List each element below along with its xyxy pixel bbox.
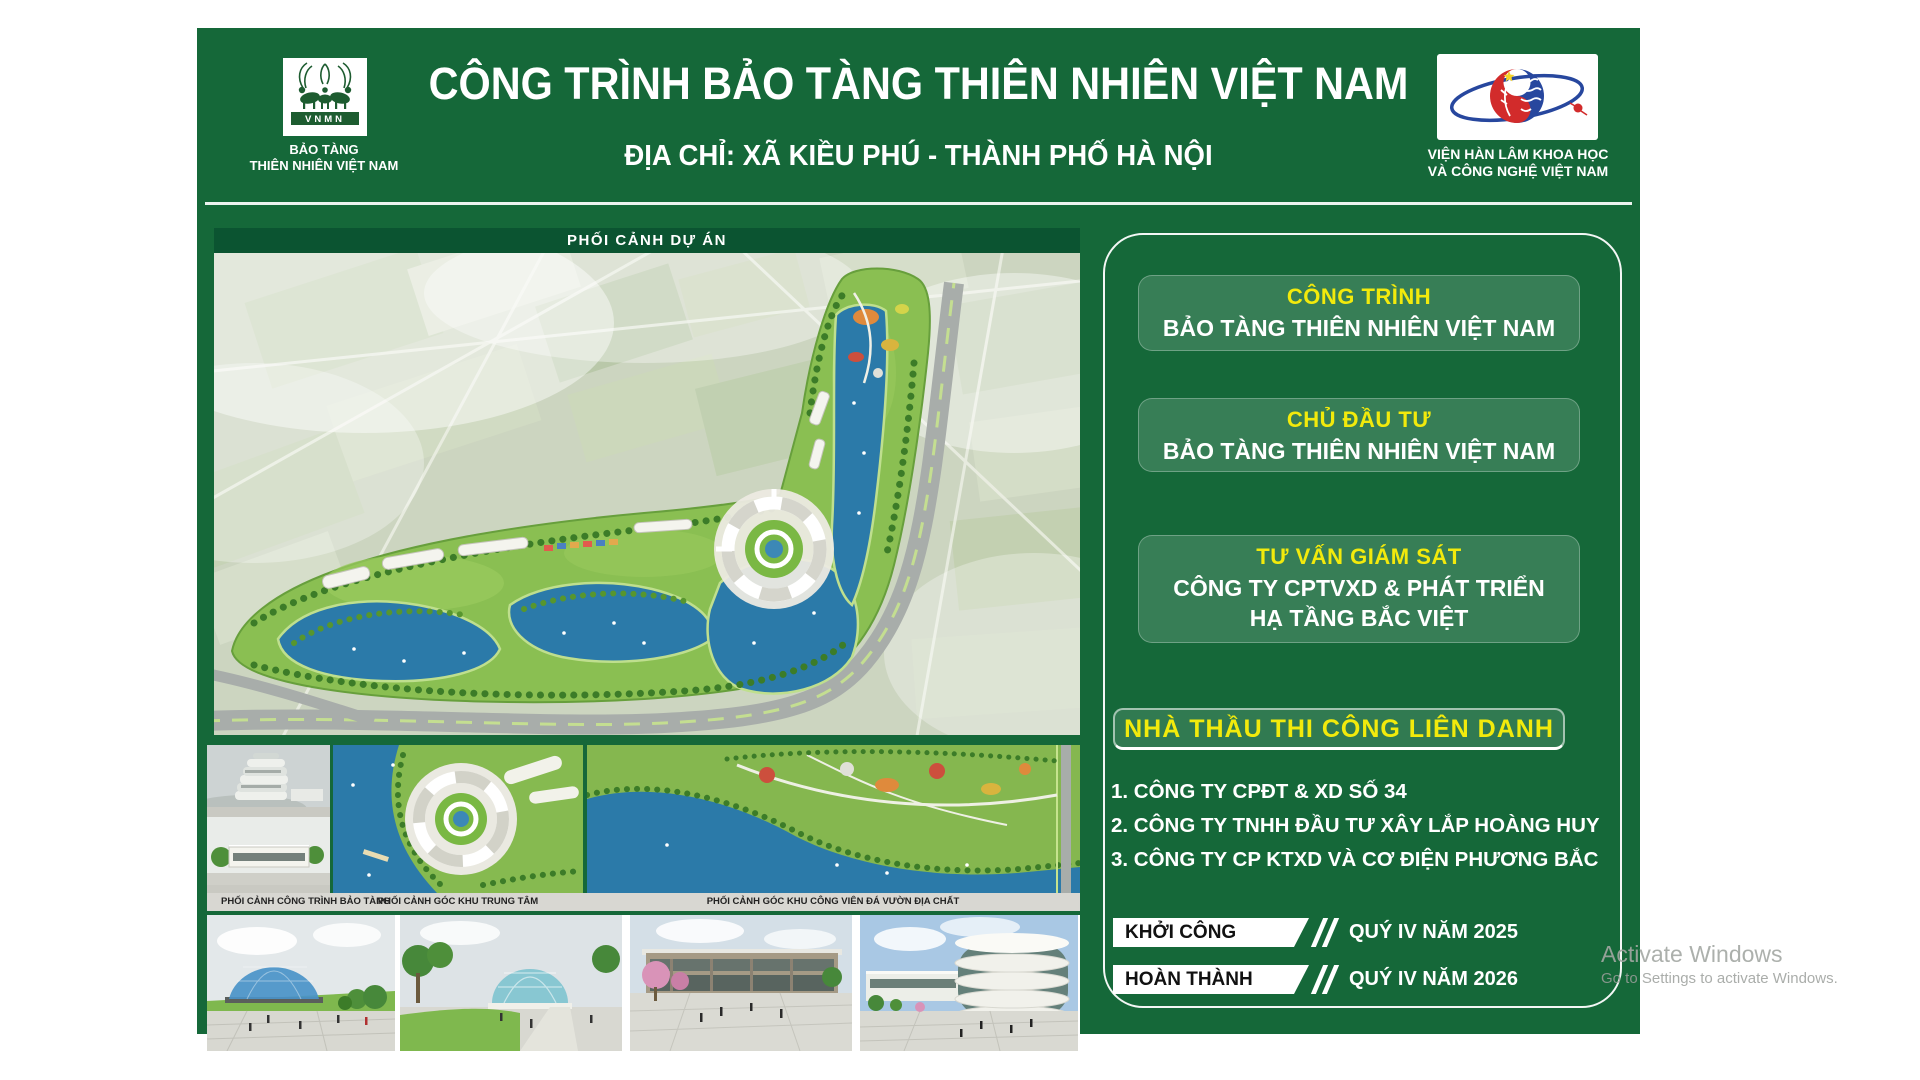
vast-logo-caption: VIỆN HÀN LÂM KHOA HỌC VÀ CÔNG NGHỆ VIỆT …: [1387, 146, 1649, 180]
vnmn-acronym: VNMN: [305, 114, 345, 125]
contractors-heading: NHÀ THẦU THI CÔNG LIÊN DANH: [1113, 708, 1565, 750]
vast-logo: [1437, 54, 1598, 140]
vast-logo-icon: [1437, 54, 1598, 140]
info-box-investor-label: CHỦ ĐẦU TƯ: [1139, 407, 1579, 433]
info-box-project: CÔNG TRÌNH BẢO TÀNG THIÊN NHIÊN VIỆT NAM: [1138, 275, 1580, 351]
start-date-value: QUÝ IV NĂM 2025: [1349, 918, 1518, 947]
gallery-caption-strip: PHỐI CẢNH CÔNG TRÌNH BẢO TÀNG PHỐI CẢNH …: [207, 893, 1080, 911]
contractors-list: 1. CÔNG TY CPĐT & XD SỐ 34 2. CÔNG TY TN…: [1111, 775, 1618, 877]
gallery-caption-3: PHỐI CẢNH GÓC KHU CÔNG VIÊN ĐÁ VƯỜN ĐỊA …: [707, 896, 960, 907]
stone-park-aerial-render: [587, 745, 1080, 893]
info-box-investor: CHỦ ĐẦU TƯ BẢO TÀNG THIÊN NHIÊN VIỆT NAM: [1138, 398, 1580, 472]
completion-date-label-plate: HOÀN THÀNH: [1113, 965, 1309, 994]
info-box-project-label: CÔNG TRÌNH: [1139, 284, 1579, 310]
pavilion-building-render: [630, 915, 852, 1051]
info-box-investor-value: BẢO TÀNG THIÊN NHIÊN VIỆT NAM: [1139, 436, 1579, 466]
street-view-render-row: [207, 915, 1080, 1051]
render-label: PHỐI CẢNH DỰ ÁN: [214, 228, 1080, 253]
completion-date-label: HOÀN THÀNH: [1113, 965, 1309, 994]
contractor-item-2: 2. CÔNG TY TNHH ĐẦU TƯ XÂY LẮP HOÀNG HUY: [1111, 809, 1618, 843]
info-box-supervisor-label: TƯ VẤN GIÁM SÁT: [1139, 544, 1579, 570]
gallery-caption-1: PHỐI CẢNH CÔNG TRÌNH BẢO TÀNG: [221, 896, 390, 907]
site-plan-render: [214, 253, 1080, 735]
start-date-label-plate: KHỞI CÔNG: [1113, 918, 1309, 947]
page-title: CÔNG TRÌNH BẢO TÀNG THIÊN NHIÊN VIỆT NAM: [255, 58, 1583, 110]
project-billboard: VNMN BẢO TÀNG THIÊN NHIÊN VIỆT NAM CÔNG …: [197, 28, 1640, 1034]
desktop: { "window": { "background": "#ffffff" },…: [0, 0, 1920, 1080]
site-plan-render-block: PHỐI CẢNH DỰ ÁN: [214, 228, 1080, 735]
info-box-supervisor: TƯ VẤN GIÁM SÁT CÔNG TY CPTVXD & PHÁT TR…: [1138, 535, 1580, 643]
greenhouse-plaza-render: [400, 915, 622, 1051]
info-box-project-value: BẢO TÀNG THIÊN NHIÊN VIỆT NAM: [1139, 313, 1579, 343]
header-divider: [205, 202, 1632, 205]
activate-windows-watermark-line2: Go to Settings to activate Windows.: [1601, 970, 1838, 987]
glass-dome-park-render: [207, 915, 395, 1051]
info-box-supervisor-value: CÔNG TY CPTVXD & PHÁT TRIỂN HẠ TẦNG BẮC …: [1139, 573, 1579, 633]
contractor-item-1: 1. CÔNG TY CPĐT & XD SỐ 34: [1111, 775, 1618, 809]
start-date-label: KHỞI CÔNG: [1113, 918, 1309, 947]
gallery-caption-2: PHỐI CẢNH GÓC KHU TRUNG TÂM: [378, 896, 538, 907]
contractor-item-3: 3. CÔNG TY CP KTXD VÀ CƠ ĐIỆN PHƯƠNG BẮC: [1111, 843, 1618, 877]
activate-windows-watermark-line1: Activate Windows: [1601, 941, 1783, 968]
museum-building-renders: [207, 745, 330, 893]
curved-museum-building-render: [860, 915, 1078, 1051]
center-zone-aerial-render: [333, 745, 583, 893]
completion-date-value: QUÝ IV NĂM 2026: [1349, 965, 1518, 994]
